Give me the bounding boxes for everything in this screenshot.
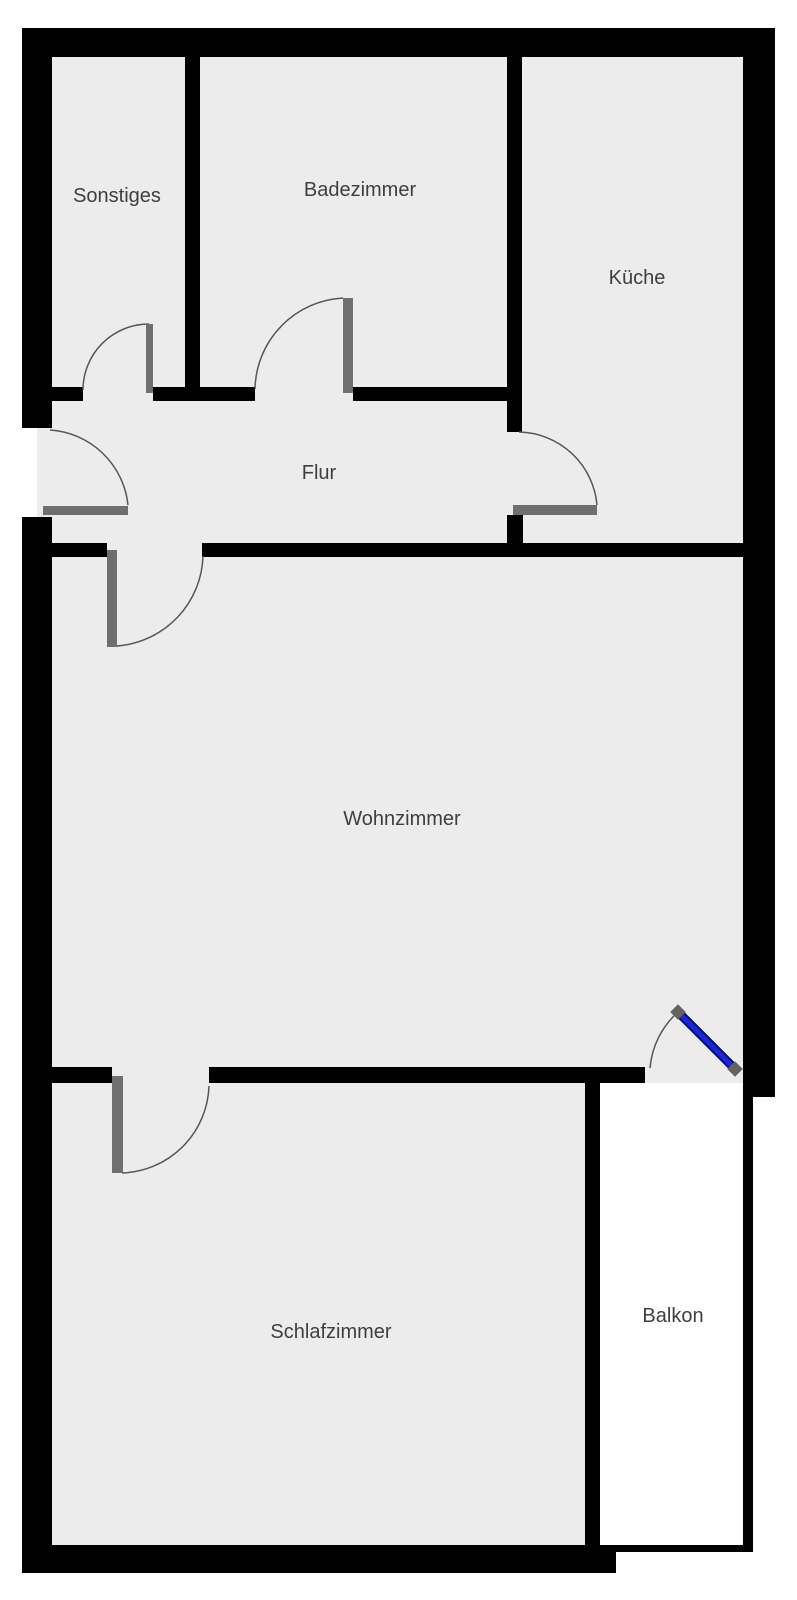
door-panel-wohnzimmer — [107, 550, 117, 647]
door-panel-entrance — [43, 506, 128, 515]
wall-outer-left-lower — [22, 517, 52, 1573]
wall-badezimmer-kueche — [507, 57, 522, 432]
wall-balkon-bottom — [616, 1545, 753, 1552]
wall-flur-bottom-a — [52, 543, 107, 557]
door-panel-sonstiges — [146, 324, 153, 393]
wall-outer-bottom — [22, 1545, 616, 1573]
door-panel-kueche — [513, 505, 597, 515]
room-label-balkon: Balkon — [642, 1305, 703, 1327]
floor-schlafzimmer-door-gap — [112, 1067, 209, 1083]
wall-kueche-door-stub — [507, 515, 523, 543]
wall-balkon-right — [743, 1097, 753, 1552]
floorplan-canvas: Sonstiges Badezimmer Küche Flur Wohnzimm… — [0, 0, 797, 1600]
wall-sonstiges-badezimmer — [185, 57, 200, 401]
wall-outer-top — [22, 28, 775, 57]
wall-wohnzimmer-bottom-a — [52, 1067, 112, 1083]
room-label-wohnzimmer: Wohnzimmer — [343, 808, 461, 830]
wall-outer-right — [743, 28, 775, 1097]
door-panel-schlafzimmer — [112, 1076, 123, 1173]
floor-main-rooms — [52, 57, 743, 1067]
wall-wohnzimmer-bottom-b — [209, 1067, 645, 1083]
floor-entrance-gap — [37, 428, 52, 517]
wall-flur-bottom-b — [202, 543, 743, 557]
wall-flur-top-a — [52, 387, 83, 401]
wall-flur-top-b — [153, 387, 255, 401]
floor-schlafzimmer — [52, 1083, 585, 1545]
room-label-schlafzimmer: Schlafzimmer — [270, 1321, 391, 1343]
room-label-kueche: Küche — [609, 267, 666, 289]
room-label-sonstiges: Sonstiges — [73, 185, 161, 207]
wall-outer-left-upper — [22, 28, 52, 428]
entrance-threshold — [22, 428, 37, 517]
wall-schlafzimmer-right — [585, 1083, 600, 1545]
wall-flur-top-c — [353, 387, 507, 401]
floorplan-page: Sonstiges Badezimmer Küche Flur Wohnzimm… — [0, 0, 797, 1600]
room-label-flur: Flur — [302, 462, 337, 484]
door-panel-badezimmer — [343, 298, 353, 393]
room-label-badezimmer: Badezimmer — [304, 179, 417, 201]
